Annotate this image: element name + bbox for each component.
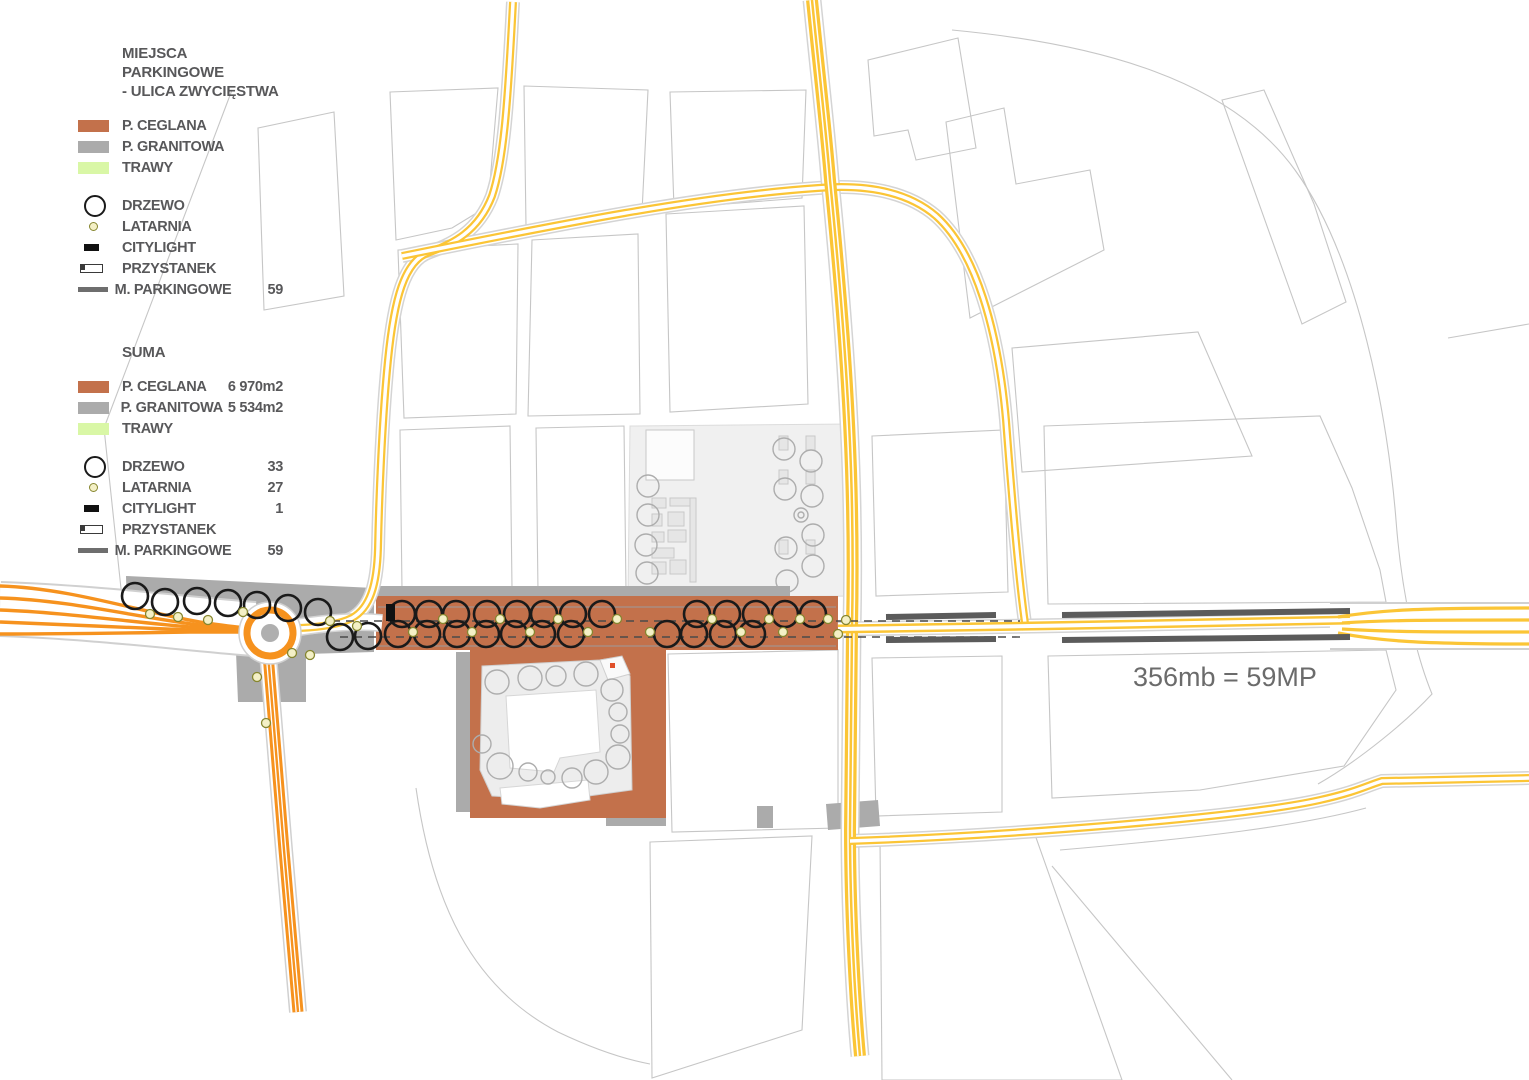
citylight-icon <box>84 505 99 512</box>
city-block <box>868 38 976 160</box>
lantern-icon <box>146 610 155 619</box>
existing-plaza <box>628 424 856 598</box>
city-block <box>946 108 1104 318</box>
parking-line <box>1062 611 1350 615</box>
granitowa-swatch <box>78 141 109 153</box>
lantern-icon <box>796 615 805 624</box>
lantern-icon <box>89 222 98 231</box>
city-block <box>524 86 648 226</box>
courtyard-marker <box>610 663 615 668</box>
suma-row-trawy: TRAWY <box>78 418 283 439</box>
suma-row-citylight: CITYLIGHT 1 <box>78 498 283 519</box>
map-annotation: 356mb = 59MP <box>1133 662 1317 692</box>
city-block <box>668 650 838 832</box>
lantern-icon <box>496 615 505 624</box>
granitowa-swatch <box>78 402 109 414</box>
lantern-icon <box>239 608 248 617</box>
city-boundary-line <box>1052 866 1232 1080</box>
city-block <box>880 832 1122 1080</box>
city-boundary-line <box>1448 324 1529 338</box>
legend-row-mparkingowe: M. PARKINGOWE 59 <box>78 279 283 300</box>
parking-line <box>1062 637 1350 640</box>
lantern-icon <box>253 673 262 682</box>
granite-strip <box>456 652 472 812</box>
lantern-icon <box>584 628 593 637</box>
plaza-building <box>646 430 694 480</box>
tree-icon <box>84 195 106 217</box>
trawy-swatch <box>78 162 109 174</box>
suma-row-mparkingowe: M. PARKINGOWE 59 <box>78 540 283 561</box>
lantern-icon <box>737 628 746 637</box>
city-block <box>650 836 812 1078</box>
courtyard <box>473 656 632 808</box>
city-boundary-south <box>416 788 650 1064</box>
lantern-icon <box>824 615 833 624</box>
lantern-icon <box>842 616 851 625</box>
lantern-icon <box>204 616 213 625</box>
city-block <box>1222 90 1346 324</box>
city-block <box>1012 332 1252 472</box>
roads-secondary <box>300 0 1529 1056</box>
ceglana-swatch <box>78 120 109 132</box>
parking-line <box>886 639 996 640</box>
lantern-icon <box>326 617 335 626</box>
suma-row-granitowa: P. GRANITOWA 5 534m2 <box>78 397 283 418</box>
lantern-icon <box>708 615 717 624</box>
granite-strip <box>757 806 773 828</box>
lantern-icon <box>526 628 535 637</box>
city-block <box>528 234 640 416</box>
roundabout-island <box>261 624 279 642</box>
legend: MIEJSCA PARKINGOWE - ULICA ZWYCIĘSTWA P.… <box>78 44 283 561</box>
suma-row-ceglana: P. CEGLANA 6 970m2 <box>78 376 283 397</box>
parking-line-icon <box>78 287 108 292</box>
tree-icon <box>84 456 106 478</box>
ceglana-swatch <box>78 381 109 393</box>
lantern-icon <box>779 628 788 637</box>
legend-row-trawy: TRAWY <box>78 157 283 178</box>
suma-title: SUMA <box>122 343 283 362</box>
lantern-icon <box>262 719 271 728</box>
lantern-icon <box>353 622 362 631</box>
suma-row-latarnia: LATARNIA 27 <box>78 477 283 498</box>
lantern-icon <box>409 628 418 637</box>
lantern-icon <box>613 615 622 624</box>
site-plan-canvas: 356mb = 59MP MIEJSCA PARKINGOWE - ULICA … <box>0 0 1529 1080</box>
lantern-icon <box>554 615 563 624</box>
suma-row-przystanek: PRZYSTANEK <box>78 519 283 540</box>
lantern-icon <box>834 630 843 639</box>
lantern-icon <box>765 615 774 624</box>
parking-line-icon <box>78 548 108 553</box>
lantern-icon <box>89 483 98 492</box>
trawy-swatch <box>78 423 109 435</box>
city-block <box>400 426 512 590</box>
bus-stop-icon <box>80 525 103 534</box>
legend-row-przystanek: PRZYSTANEK <box>78 258 283 279</box>
suma-row-drzewo: DRZEWO 33 <box>78 456 283 477</box>
legend-row-ceglana: P. CEGLANA <box>78 115 283 136</box>
legend-row-drzewo: DRZEWO <box>78 195 283 216</box>
lantern-icon <box>468 628 477 637</box>
lantern-icon <box>174 613 183 622</box>
city-block <box>1044 416 1386 604</box>
legend-row-granitowa: P. GRANITOWA <box>78 136 283 157</box>
legend-row-latarnia: LATARNIA <box>78 216 283 237</box>
city-block <box>872 430 1008 596</box>
lantern-icon <box>439 615 448 624</box>
legend-title: MIEJSCA PARKINGOWE - ULICA ZWYCIĘSTWA <box>122 44 283 101</box>
bus-stop-icon <box>80 264 103 273</box>
city-block <box>536 426 626 592</box>
legend-row-citylight: CITYLIGHT <box>78 237 283 258</box>
lantern-icon <box>306 651 315 660</box>
lantern-icon <box>288 649 297 658</box>
citylight-marker <box>386 604 395 621</box>
citylight-icon <box>84 244 99 251</box>
parking-line <box>886 615 996 617</box>
city-block <box>872 656 1002 816</box>
lantern-icon <box>646 628 655 637</box>
city-block <box>666 206 808 412</box>
